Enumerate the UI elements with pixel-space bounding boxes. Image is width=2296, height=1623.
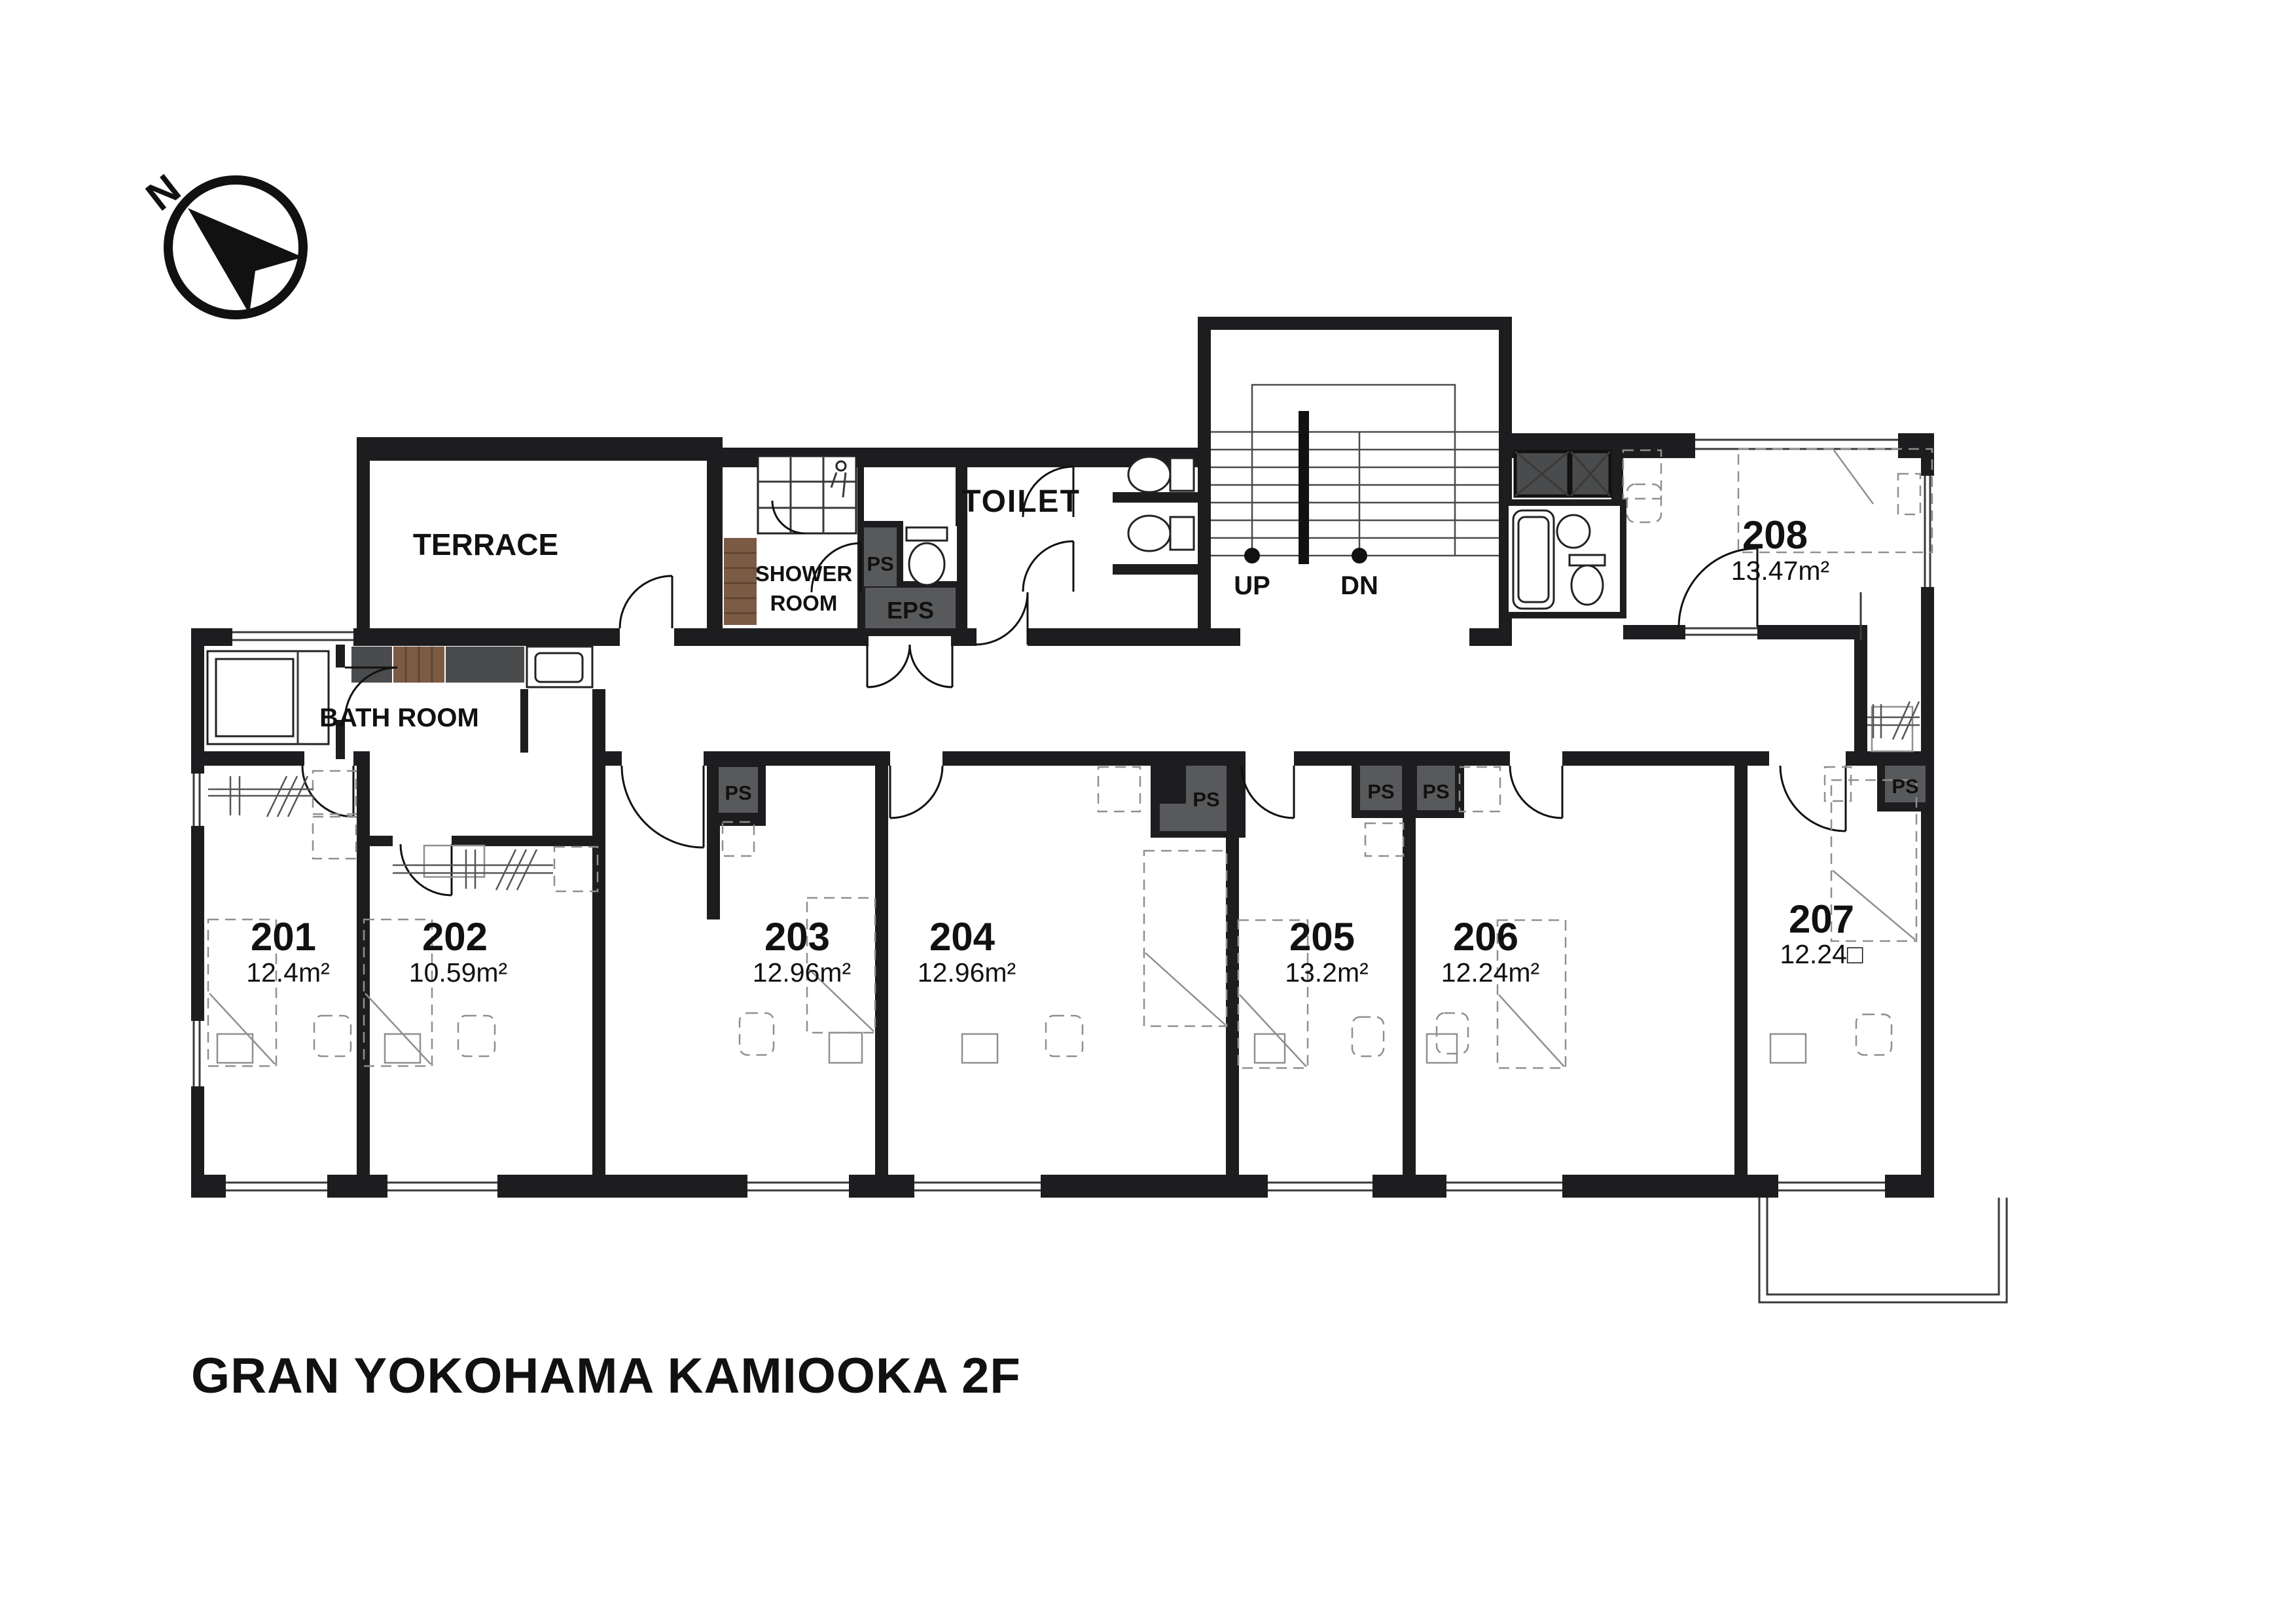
toilet-fixture-nook xyxy=(906,527,947,585)
room-206-area: 12.24m² xyxy=(1441,957,1539,988)
svg-text:TOILET: TOILET xyxy=(961,484,1081,519)
room-labels: TERRACE BATH ROOM SHOWER ROOM TOILET PS … xyxy=(246,484,1918,988)
closet-207 xyxy=(1825,767,1851,801)
label-ps-204: PS xyxy=(1193,788,1219,811)
compass: N xyxy=(138,166,303,315)
bath-counter-left xyxy=(351,647,392,683)
toilet-fixture-stall-1 xyxy=(1128,457,1194,492)
room-206-door xyxy=(1510,766,1562,818)
unit-bath-sink xyxy=(1557,515,1590,548)
desk-203 xyxy=(829,1033,862,1063)
stair-divider-wall xyxy=(1299,411,1309,564)
floor-plan-page: N xyxy=(0,0,2296,1623)
walls xyxy=(191,317,1934,1198)
label-bath-room: BATH ROOM xyxy=(319,704,479,732)
chair-202 xyxy=(458,1016,495,1056)
svg-text:SHOWER: SHOWER xyxy=(755,562,853,586)
closet-206 xyxy=(1460,767,1500,811)
toilet-fixture-stall-2 xyxy=(1128,516,1194,551)
up-marker-icon xyxy=(1244,548,1260,563)
up-label: UP xyxy=(1234,571,1270,600)
wood-deck-shower xyxy=(724,538,757,625)
chair-207 xyxy=(1856,1014,1892,1055)
room-207-door xyxy=(1780,766,1846,831)
room-203-area: 12.96m² xyxy=(753,957,851,988)
label-shower-room: SHOWER ROOM xyxy=(755,562,853,615)
room-204-door xyxy=(890,766,942,818)
page-title: GRAN YOKOHAMA KAMIOOKA 2F xyxy=(191,1348,1021,1404)
label-terrace: TERRACE xyxy=(413,527,558,562)
room-202-area: 10.59m² xyxy=(409,957,507,988)
floor-plan-canvas: N xyxy=(0,0,2296,1623)
room-201-number: 201 xyxy=(251,915,316,959)
washing-machine-drum xyxy=(216,659,293,736)
label-eps: EPS xyxy=(887,597,934,624)
label-ps-203: PS xyxy=(725,781,751,804)
label-ps-upper: PS xyxy=(867,552,893,575)
closet-205 xyxy=(1365,823,1403,856)
room-201-door xyxy=(302,766,353,817)
chair-205 xyxy=(1352,1017,1384,1056)
room-203: 203 12.96m² xyxy=(753,915,851,988)
stall-door-2 xyxy=(1023,541,1073,592)
desk-204 xyxy=(962,1034,997,1063)
bath-counter-right xyxy=(446,647,524,683)
room-206: 206 12.24m² xyxy=(1441,915,1539,988)
stair-treads xyxy=(1211,385,1499,556)
closet-201-b xyxy=(313,817,356,859)
stairwell: UP DN xyxy=(1211,385,1499,600)
room-201: 201 12.4m² xyxy=(246,915,330,988)
closet-202 xyxy=(554,847,598,891)
room-207-area: 12.24□ xyxy=(1780,939,1863,969)
room-205-number: 205 xyxy=(1289,915,1355,959)
chair-204 xyxy=(1046,1016,1083,1056)
room-202-door xyxy=(401,844,452,895)
chair-201 xyxy=(314,1016,351,1056)
room-203-number: 203 xyxy=(764,915,830,959)
unit-bath-208 xyxy=(1505,503,1623,615)
room-202: 202 10.59m² xyxy=(409,915,507,988)
label-ps-207: PS xyxy=(1892,775,1918,798)
room-205-door xyxy=(1242,766,1294,818)
closet-201-a xyxy=(313,771,356,814)
room-203-door xyxy=(622,766,704,847)
room-204-area: 12.96m² xyxy=(918,957,1016,988)
bath-sink-basin xyxy=(535,653,583,682)
bed-204 xyxy=(1144,851,1227,1026)
room-208-number: 208 xyxy=(1742,513,1808,557)
chair-208 xyxy=(1627,484,1661,522)
room-201-area: 12.4m² xyxy=(246,957,330,988)
room-204-number: 204 xyxy=(929,915,996,959)
toilet-stalls xyxy=(1113,457,1198,575)
svg-text:BATH ROOM: BATH ROOM xyxy=(319,704,479,732)
balcony xyxy=(1759,1198,2007,1302)
chair-203 xyxy=(740,1013,774,1055)
room-202-number: 202 xyxy=(422,915,488,959)
terrace-door xyxy=(620,576,672,628)
room-204: 204 12.96m² xyxy=(918,915,1016,988)
room-207-number: 207 xyxy=(1789,897,1854,941)
label-toilet: TOILET xyxy=(961,484,1081,519)
closet-203 xyxy=(723,822,754,856)
desk-201 xyxy=(217,1034,253,1063)
desk-207 xyxy=(1770,1034,1806,1063)
dn-label: DN xyxy=(1340,571,1378,600)
room-208-area: 13.47m² xyxy=(1731,556,1829,586)
room-207: 207 12.24□ xyxy=(1780,897,1863,969)
label-ps-205: PS xyxy=(1367,780,1394,803)
svg-text:TERRACE: TERRACE xyxy=(413,527,558,562)
desk-206 xyxy=(1427,1034,1457,1063)
unit-bath-toilet xyxy=(1570,555,1605,605)
dn-marker-icon xyxy=(1352,548,1367,563)
room-205-area: 13.2m² xyxy=(1285,957,1369,988)
svg-text:ROOM: ROOM xyxy=(770,591,838,615)
room-205: 205 13.2m² xyxy=(1285,915,1369,988)
toilet-room-door xyxy=(975,592,1028,645)
eps-double-door xyxy=(867,645,952,687)
pillow-208 xyxy=(1898,474,1920,514)
closet-204 xyxy=(1098,767,1140,811)
room-208: 208 13.47m² xyxy=(1731,513,1861,640)
desk-202 xyxy=(385,1034,420,1063)
shower-unit xyxy=(758,456,856,533)
hatched-shafts xyxy=(1515,452,1610,496)
room-206-number: 206 xyxy=(1453,915,1518,959)
label-ps-206: PS xyxy=(1422,780,1449,803)
